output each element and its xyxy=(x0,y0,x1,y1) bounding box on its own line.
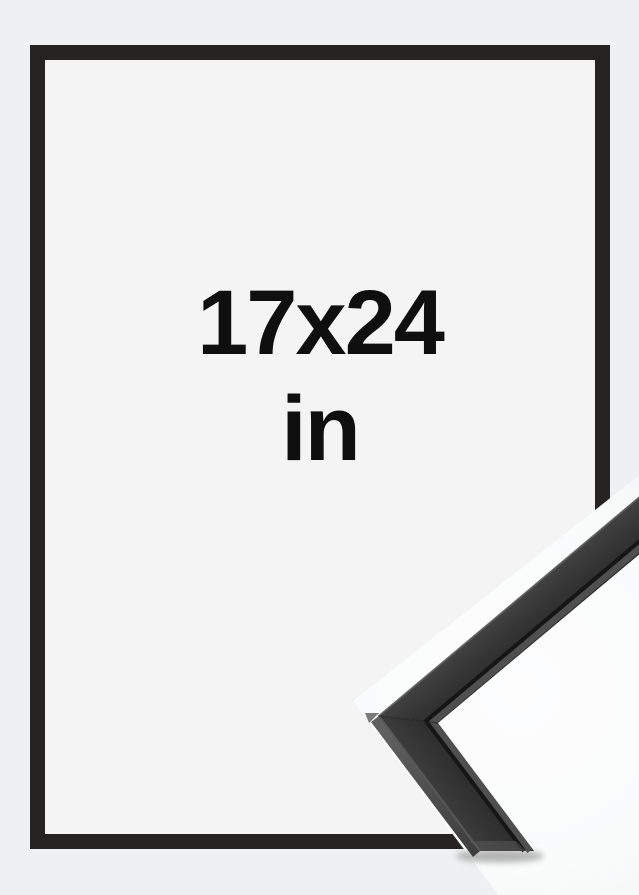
size-value: 17x24 xyxy=(46,270,594,376)
product-image[interactable]: 17x24 in xyxy=(0,0,639,895)
size-label: 17x24 in xyxy=(46,270,594,482)
size-unit: in xyxy=(46,376,594,482)
moulding-shadow xyxy=(456,850,544,863)
